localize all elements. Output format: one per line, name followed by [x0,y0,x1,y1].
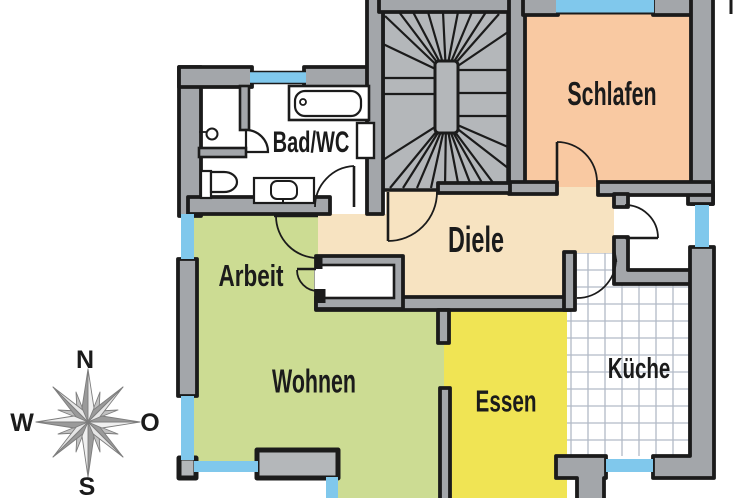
svg-text:S: S [79,473,96,498]
svg-text:O: O [140,409,159,437]
svg-text:Essen: Essen [476,383,537,418]
svg-text:Schlafen: Schlafen [567,75,656,112]
svg-text:N: N [76,346,94,374]
svg-text:Küche: Küche [608,353,671,385]
svg-text:Bad/WC: Bad/WC [273,126,350,159]
svg-text:Wohnen: Wohnen [272,363,356,400]
svg-text:Diele: Diele [448,220,504,260]
svg-text:W: W [10,409,34,437]
svg-text:Arbeit: Arbeit [219,259,284,293]
